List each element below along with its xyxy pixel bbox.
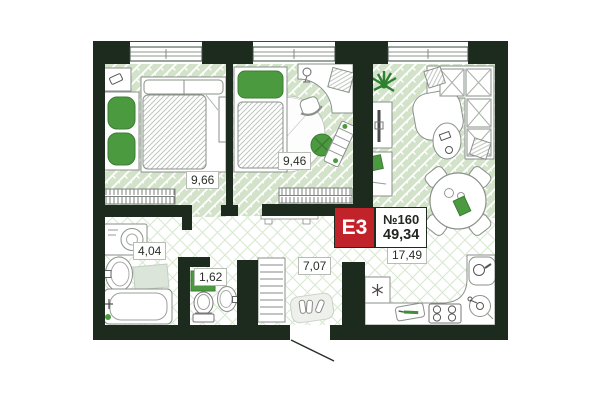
bath-mat [133, 264, 169, 290]
toilet-fixture [193, 292, 214, 322]
windows [130, 47, 468, 61]
kettle [469, 257, 495, 285]
room-area-label-bathroom: 4,04 [133, 242, 166, 260]
double-bed [141, 77, 226, 172]
unit-number: №160 [383, 212, 419, 227]
radiator [104, 189, 175, 204]
doormat-with-shoes [289, 292, 334, 324]
unit-info: №160 49,34 [374, 208, 426, 247]
wardrobe-with-poufs [104, 92, 139, 170]
room-area-label-bedroom-1: 9,66 [186, 171, 219, 189]
wall-bottom-left [93, 325, 290, 340]
coffee-table [433, 123, 461, 159]
dining-set [423, 165, 493, 238]
wall-bottom-right [330, 325, 508, 340]
window [388, 47, 468, 61]
door-leaf [219, 97, 226, 142]
window [130, 47, 202, 61]
nightstand [104, 68, 131, 91]
wall-right [495, 41, 508, 340]
bathtub [104, 289, 172, 324]
unit-total-area: 49,34 [383, 227, 419, 244]
room-area-label-kitchen-living: 17,49 [387, 246, 427, 264]
unit-type-label: E3 [335, 208, 374, 247]
wall-left [93, 41, 105, 340]
room-area-label-bedroom-2: 9,46 [278, 152, 311, 170]
floor-plan-image: 9,66 9,46 4,04 1,62 7,07 17,49 E3 №160 4… [0, 0, 600, 400]
window [253, 47, 335, 61]
room-area-label-toilet: 1,62 [194, 268, 227, 286]
fridge [365, 277, 390, 303]
hall-wardrobe [258, 258, 285, 322]
floor-plan-drawing [0, 0, 600, 400]
unit-badge: E3 №160 49,34 [334, 207, 427, 248]
stove [429, 304, 461, 323]
radiator [279, 188, 352, 203]
room-area-label-hallway: 7,07 [298, 257, 331, 275]
entrance-door-swing [291, 340, 334, 361]
